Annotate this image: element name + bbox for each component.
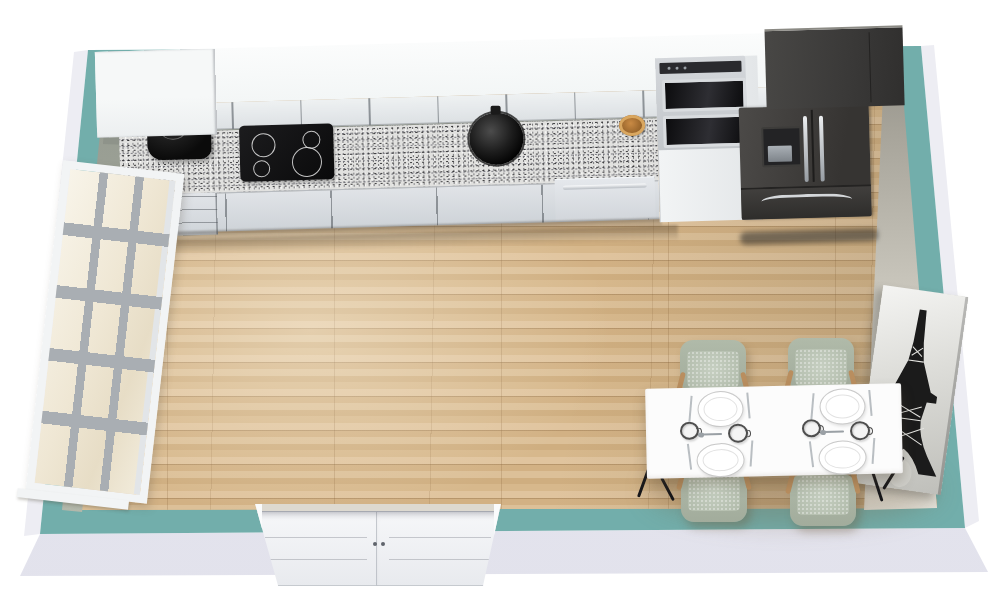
cutlery-icon — [746, 393, 750, 419]
place-setting — [665, 386, 777, 478]
spoon-icon — [702, 433, 722, 435]
double-wall-oven[interactable] — [655, 56, 748, 150]
table-leg — [660, 477, 675, 501]
cutlery-icon — [868, 390, 872, 416]
cutlery-icon — [687, 444, 692, 470]
burner-icon — [292, 147, 323, 178]
fridge-handle — [819, 116, 825, 182]
oven-door-lower — [663, 114, 748, 148]
corner-cabinet[interactable] — [95, 49, 217, 138]
dining-table[interactable] — [645, 383, 903, 478]
dishwasher[interactable] — [555, 176, 656, 221]
cutlery-icon — [750, 440, 753, 466]
chair-cushion — [795, 349, 847, 389]
cutlery-icon — [872, 438, 875, 464]
plate — [818, 440, 867, 475]
door-leaf-right[interactable] — [376, 511, 503, 586]
kitchen-run — [88, 15, 916, 250]
refrigerator[interactable] — [739, 104, 872, 220]
freezer-drawer — [741, 184, 872, 220]
cup — [850, 421, 870, 440]
burner-icon — [251, 133, 276, 158]
cup — [728, 424, 748, 443]
floor-plan-scene — [0, 0, 1000, 600]
burner-icon — [253, 160, 270, 177]
cutlery-icon — [809, 441, 814, 467]
dining-chair[interactable] — [788, 338, 854, 390]
oven-door-upper — [662, 78, 747, 112]
cutlery-icon — [810, 393, 814, 419]
dining-area — [636, 330, 958, 534]
plate — [696, 443, 745, 478]
door-handle — [381, 542, 385, 546]
dining-chair[interactable] — [681, 470, 747, 522]
plate — [819, 388, 866, 425]
plate — [697, 391, 744, 428]
double-door[interactable] — [250, 504, 506, 586]
cutlery-icon — [688, 396, 692, 422]
spoon-icon — [824, 431, 844, 433]
fridge-handle — [803, 116, 809, 182]
door-handle — [373, 542, 377, 546]
ice-dispenser — [761, 126, 802, 167]
fridge-door-gap — [810, 110, 814, 182]
dining-chair[interactable] — [680, 340, 746, 392]
oven-controls — [659, 61, 741, 74]
chair-cushion — [687, 351, 739, 391]
chair-cushion — [797, 475, 849, 515]
place-setting — [787, 383, 899, 475]
dining-chair[interactable] — [790, 474, 856, 526]
fridge-top-cabinet[interactable] — [764, 25, 904, 109]
cup — [802, 419, 821, 437]
cooktop[interactable] — [239, 123, 335, 182]
cup — [680, 422, 699, 440]
